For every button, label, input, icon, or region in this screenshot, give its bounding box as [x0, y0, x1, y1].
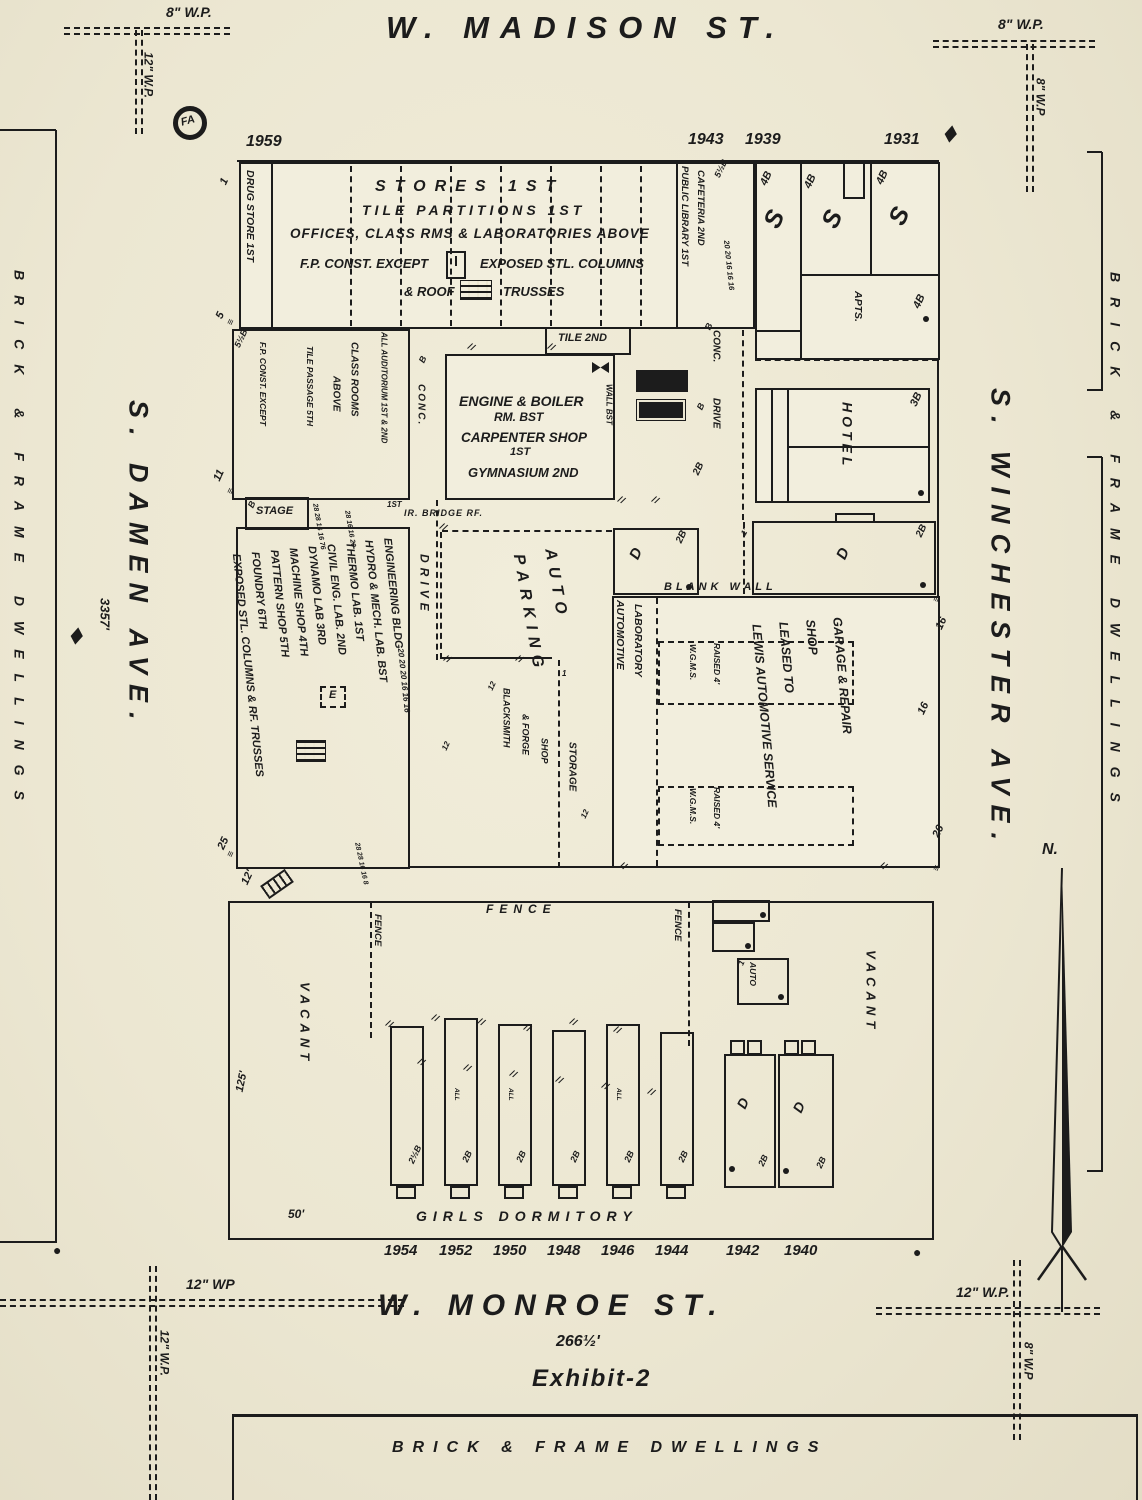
house-note: ALL — [452, 1088, 459, 1132]
apartments-label: APTS. — [852, 291, 863, 357]
address-bottom: 1940 — [784, 1243, 817, 1259]
stage-label: STAGE — [256, 506, 293, 518]
dorm-house — [444, 1018, 478, 1186]
dorm-house — [606, 1024, 640, 1186]
fence-line — [688, 902, 690, 1046]
hotel-label: HOTEL — [840, 402, 855, 502]
wgms-label: W.G.M.S. — [688, 788, 697, 844]
conc-drive-label: DRIVE — [418, 554, 431, 812]
water-pipe-line — [64, 27, 230, 35]
address-top: 1959 — [246, 134, 282, 151]
ne-store-partition — [800, 274, 940, 276]
main-building-use-label: OFFICES, CLASS RMS & LABORATORIES ABOVE — [290, 227, 650, 241]
dorm-block-south — [228, 1238, 934, 1240]
shed-outline — [712, 900, 770, 922]
lot-line — [755, 359, 938, 361]
hydrant-icon: ● — [53, 1243, 61, 1258]
address-bottom: 1954 — [384, 1243, 417, 1259]
water-pipe-line — [1013, 1260, 1021, 1440]
boiler-tank — [636, 370, 688, 392]
ne-store-notch — [843, 162, 865, 199]
structure-dot — [923, 316, 929, 322]
wgms-label: W.G.M.S. — [688, 644, 697, 702]
water-pipe-label: 12" W.P. — [142, 52, 155, 132]
water-pipe-label: 8" W.P — [1022, 1342, 1035, 1422]
water-pipe-line — [1026, 44, 1034, 192]
drive-line — [436, 500, 438, 660]
ne-store-partition — [800, 162, 802, 360]
skylight-symbol: E — [320, 686, 346, 708]
wall-note: WALL BST — [604, 384, 612, 474]
hotel-partition — [771, 388, 773, 503]
tile-room-label: TILE 2ND — [558, 333, 607, 345]
dimension-label: 12' — [240, 869, 257, 887]
address-bottom: 1950 — [493, 1243, 526, 1259]
wall-hatch: // — [466, 342, 476, 354]
engine-label: RM. BST — [494, 411, 543, 424]
address-bottom: 1946 — [601, 1243, 634, 1259]
address-top: 1931 — [884, 132, 920, 149]
dwelling-porch — [801, 1040, 816, 1055]
fire-alarm-label: FA — [180, 114, 197, 129]
wall-hatch: // — [568, 1017, 578, 1029]
conc-drive-label: CONC. — [710, 330, 721, 394]
engine-label: GYMNASIUM 2ND — [468, 466, 579, 480]
fence-label: FENCE — [486, 903, 557, 916]
storage-label: STORAGE — [566, 742, 577, 866]
store-partition — [640, 166, 642, 326]
sanborn-fire-insurance-map: W. MADISON ST. W. MONROE ST. 266½' Exhib… — [0, 0, 1142, 1500]
hotel-partition — [787, 446, 930, 448]
water-pipe-line — [933, 40, 1095, 48]
raised-label: RAISED 4' — [712, 643, 721, 703]
fire-alarm-icon: FA — [173, 106, 207, 140]
truss-symbol — [460, 280, 492, 300]
auditorium-label: CLASS ROOMS — [348, 342, 359, 492]
street-madison: W. MADISON ST. — [386, 12, 785, 45]
dorm-block-east — [932, 901, 934, 1240]
south-box-top — [232, 1414, 1138, 1417]
dimension-label: 12 — [441, 740, 452, 752]
wall-hatch: // — [616, 495, 626, 507]
conc-drive-label: DRIVE — [710, 398, 721, 480]
wall-hatch: // — [442, 654, 452, 666]
structure-dot — [745, 943, 751, 949]
dimension-label: 50' — [288, 1208, 304, 1221]
structure-dot — [920, 582, 926, 588]
water-pipe-label: 8" W.P. — [166, 5, 212, 20]
girls-dormitory-label: GIRLS DORMITORY — [416, 1209, 638, 1224]
drug-store-partition — [271, 162, 273, 329]
auditorium-label: ABOVE — [330, 376, 341, 481]
street-winchester: S. WINCHESTER AVE. — [986, 388, 1014, 888]
dorm-house-porch — [558, 1186, 578, 1199]
dorm-block-west — [228, 901, 230, 1240]
ne-store-partition — [755, 330, 800, 332]
frontage-number: 1 — [219, 177, 232, 187]
address-bottom: 1948 — [547, 1243, 580, 1259]
conc-drive-label: CONC. — [415, 384, 426, 476]
vacant-label: VACANT — [298, 982, 312, 1170]
wall-hatch: // — [650, 495, 660, 507]
house-note: ALL — [506, 1088, 513, 1132]
construction-note: & ROOF — [404, 285, 455, 299]
exhibit-title: Exhibit-2 — [532, 1366, 651, 1391]
water-pipe-label: 12" W.P. — [158, 1330, 171, 1420]
vacant-label: VACANT — [864, 950, 878, 1140]
west-dwellings-label: BRICK & FRAME DWELLINGS — [12, 270, 27, 1210]
dorm-house-porch — [504, 1186, 524, 1199]
dimension-label: 1 — [562, 670, 566, 678]
structure-dot — [918, 490, 924, 496]
floor-mark: 1ST — [387, 501, 402, 509]
east-block-tick-1 — [1087, 151, 1102, 153]
south-dwellings-label: BRICK & FRAME DWELLINGS — [392, 1440, 827, 1457]
dorm-house-porch — [450, 1186, 470, 1199]
dorm-house-porch — [666, 1186, 686, 1199]
lot-line — [743, 522, 745, 594]
dimension-label: 12 — [487, 680, 498, 692]
construction-note: F.P. CONST. EXCEPT — [300, 257, 428, 271]
yard-south-line — [410, 866, 612, 868]
cafeteria-label: CAFETERIA 2ND — [695, 170, 705, 326]
east-block-line-2 — [1101, 457, 1103, 1172]
dwelling-bump — [835, 513, 875, 523]
west-block-corner-top — [0, 129, 56, 131]
south-box-left — [232, 1414, 234, 1500]
parking-line — [442, 530, 612, 532]
east-block-tick-2 — [1087, 389, 1102, 391]
structure-dot — [778, 994, 784, 1000]
west-block-line — [55, 130, 57, 1243]
dorm-house-porch — [612, 1186, 632, 1199]
dwelling-porch — [747, 1040, 762, 1055]
hydrant-icon: ● — [913, 1245, 921, 1260]
monroe-width-dim: 266½' — [556, 1334, 600, 1351]
truss-symbol — [296, 740, 326, 762]
auditorium-label: F.P. CONST. EXCEPT — [258, 342, 267, 494]
auditorium-label: ALL AUDITORIUM 1ST & 2ND — [379, 332, 387, 496]
automotive-lab-label: AUTOMOTIVE — [614, 600, 625, 722]
basement-mark: B — [696, 402, 707, 412]
skylight-symbol — [446, 251, 466, 279]
dorm-house-porch — [396, 1186, 416, 1199]
address-top: 1939 — [745, 132, 781, 149]
drive-line — [742, 330, 744, 520]
ne-store-partition — [870, 162, 872, 276]
address-top: 1943 — [688, 132, 724, 149]
street-damen: S. DAMEN AVE. — [124, 400, 152, 780]
address-bottom: 1952 — [439, 1243, 472, 1259]
west-block-corner-bottom — [0, 1241, 56, 1243]
construction-note: EXPOSED STL. COLUMNS — [480, 257, 644, 271]
iron-bridge-label: IR. BRIDGE RF. — [404, 509, 483, 518]
construction-note: TRUSSES — [503, 285, 564, 299]
dorm-block-north — [228, 901, 934, 903]
frontage-tick: ≡ — [223, 848, 235, 858]
water-pipe-line — [149, 1266, 157, 1500]
frontage-tick: ≡ — [223, 316, 235, 326]
structure-dot — [760, 912, 766, 918]
skylight-letter: E — [329, 690, 336, 702]
drug-store-label: DRUG STORE 1ST — [244, 170, 255, 322]
house-note: ALL — [614, 1088, 621, 1132]
boiler-tank — [637, 400, 685, 420]
main-building-use-label: STORES 1ST — [375, 179, 564, 196]
dorm-house — [390, 1026, 424, 1186]
south-box-right — [1136, 1414, 1138, 1500]
address-bottom: 1942 — [726, 1243, 759, 1259]
wall-hatch: // — [430, 1013, 440, 1025]
engine-label: ENGINE & BOILER — [459, 394, 583, 409]
fence-label: FENCE — [372, 914, 382, 1042]
engine-label: CARPENTER SHOP — [461, 431, 587, 445]
auto-shed-label: AUTO — [748, 962, 757, 1002]
height-label: 2B — [692, 461, 707, 477]
structure-dot — [783, 1168, 789, 1174]
basement-mark: B — [418, 355, 429, 365]
store-partition — [350, 166, 352, 326]
address-bottom: 1944 — [655, 1243, 688, 1259]
dorm-house — [552, 1030, 586, 1186]
dimension-label: 1' — [740, 528, 750, 537]
dorm-house — [660, 1032, 694, 1186]
public-library-label: PUBLIC LIBRARY 1ST — [679, 166, 689, 324]
auditorium-label: TILE PASSAGE 5TH — [305, 346, 314, 494]
dorm-house — [498, 1024, 532, 1186]
north-arrow-icon — [1026, 850, 1096, 1320]
parking-line — [440, 532, 442, 659]
east-dwellings-label: BRICK & FRAME DWELLINGS — [1108, 272, 1123, 1222]
street-monroe: W. MONROE ST. — [378, 1290, 726, 1322]
water-pipe-label: 12" WP — [186, 1277, 235, 1292]
dwelling-porch — [730, 1040, 745, 1055]
dimension-label: 12 — [580, 808, 591, 820]
dwelling-porch — [784, 1040, 799, 1055]
raised-label: RAISED 4' — [712, 787, 721, 845]
engine-label: 1ST — [510, 447, 530, 459]
frontage-number: 11 — [212, 468, 227, 483]
hydrant-icon: ◆ — [70, 625, 82, 647]
blacksmith-label: BLACKSMITH — [501, 688, 510, 868]
ladder-symbol — [260, 869, 294, 899]
store-partition — [600, 166, 602, 326]
water-pipe-label: 8" W.P — [1034, 78, 1047, 168]
library-partition — [676, 162, 678, 329]
east-block-tick-3 — [1087, 456, 1102, 458]
water-pipe-line — [0, 1299, 404, 1307]
water-pipe-label: 12" W.P. — [956, 1285, 1010, 1300]
hydrant-icon: ◆ — [944, 123, 956, 145]
water-pipe-label: 8" W.P. — [998, 17, 1044, 32]
damen-dim: 3357' — [98, 598, 112, 670]
dimension-label: 125' — [235, 1070, 251, 1093]
main-building-use-label: TILE PARTITIONS 1ST — [362, 203, 585, 218]
blacksmith-label: SHOP — [539, 738, 548, 850]
fence-label: FENCE — [672, 909, 682, 1009]
east-block-line-1 — [1101, 152, 1103, 391]
structure-dot — [729, 1166, 735, 1172]
storage-line — [558, 660, 560, 868]
blacksmith-label: & FORGE — [520, 714, 529, 849]
automotive-lab-label: LABORATORY — [632, 604, 643, 726]
structure-dot — [686, 584, 692, 590]
wall-hatch: // — [646, 1087, 656, 1099]
